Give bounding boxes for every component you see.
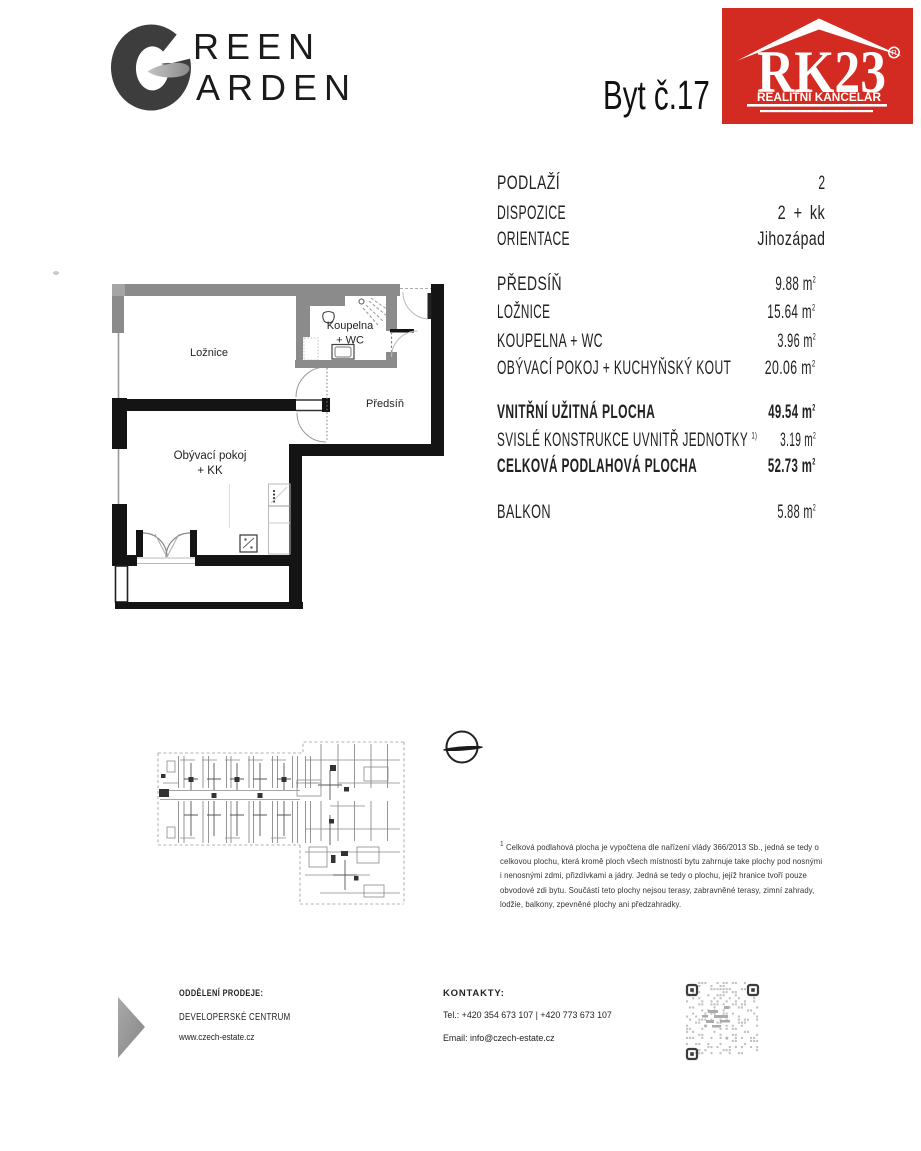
svg-text:Ložnice: Ložnice bbox=[190, 347, 228, 359]
svg-text:ARDEN: ARDEN bbox=[196, 67, 355, 108]
svg-text:REALITNÍ KANCELÁŘ: REALITNÍ KANCELÁŘ bbox=[757, 91, 882, 104]
svg-text:R: R bbox=[891, 48, 897, 57]
svg-text:Obývací pokoj: Obývací pokoj bbox=[174, 450, 247, 462]
svg-text:+ WC: + WC bbox=[336, 335, 364, 347]
svg-text:Předsíň: Předsíň bbox=[366, 398, 404, 410]
svg-text:+ KK: + KK bbox=[197, 465, 223, 477]
svg-text:Koupelna: Koupelna bbox=[327, 320, 374, 332]
svg-text:REEN: REEN bbox=[193, 26, 321, 67]
